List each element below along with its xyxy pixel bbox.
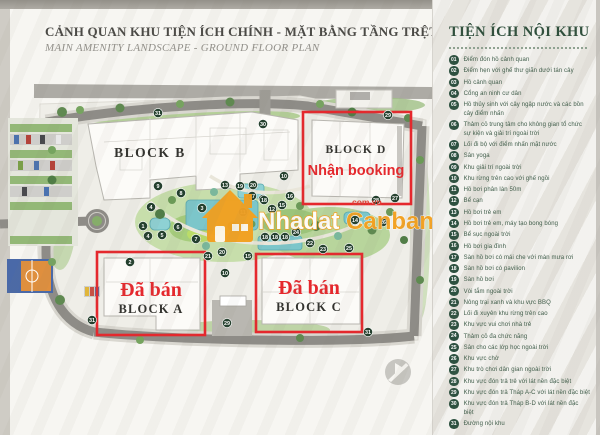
legend-item-label: Hồ bơi trẻ em, máy tạo bong bóng [464, 219, 590, 229]
legend-item: 25Sân cho các lớp học ngoài trời [449, 343, 590, 353]
amenity-marker-number: 29 [224, 321, 230, 327]
amenity-marker-number: 8 [180, 191, 183, 197]
legend-item: 24Thảm cỏ đa chức năng [449, 331, 590, 341]
watermark-domain: com.vn [352, 197, 382, 207]
page-subtitle: MAIN AMENITY LANDSCAPE - GROUND FLOOR PL… [45, 42, 438, 54]
legend-item: 13Hồ bơi trẻ em [449, 208, 590, 218]
amenity-marker-number: 13 [222, 183, 228, 189]
legend-item-number: 11 [449, 185, 459, 195]
legend-item: 06Thảm cỏ trung tâm cho không gian tổ ch… [449, 120, 590, 139]
amenity-marker-number: 21 [205, 254, 211, 260]
legend-item-number: 14 [449, 219, 459, 229]
legend-item: 28Khu vực đón trả trẻ với lát nền đặc bi… [449, 377, 590, 387]
legend-item-number: 05 [449, 100, 459, 110]
amenity-marker-number: 18 [261, 198, 267, 204]
legend-item-label: Khu vực đón trả Tháp B-D với lát nền đặc… [464, 399, 590, 418]
legend-item-label: Sân cho các lớp học ngoài trời [464, 343, 590, 353]
legend-item-label: Khu vực chờ [464, 354, 590, 364]
block-a-label: BLOCK A [118, 302, 183, 316]
amenity-marker-number: 30 [260, 122, 266, 128]
legend-item-label: Hồ bơi phân làn 50m [464, 185, 590, 195]
amenity-marker-number: 5 [161, 233, 164, 239]
legend-item-number: 30 [449, 399, 459, 409]
legend-title: TIỆN ÍCH NỘI KHU [449, 24, 587, 49]
amenity-marker-number: 4 [150, 205, 153, 211]
amenity-marker-number: 19 [237, 184, 243, 190]
legend-item-label: Hồ thủy sinh với cây ngập nước và các bồ… [464, 100, 590, 119]
legend-item-label: Khu trò chơi dân gian ngoài trời [464, 365, 590, 375]
legend-item-label: Cổng an ninh cư dân [464, 89, 590, 99]
legend-item-number: 08 [449, 151, 459, 161]
legend-item-number: 20 [449, 286, 459, 296]
amenity-marker-number: 29 [385, 113, 391, 119]
page-right-border [596, 0, 600, 435]
developer-logo-icon [385, 359, 411, 385]
block-b-label: BLOCK B [114, 145, 186, 160]
watermark-text: Nhadat Canban [258, 208, 434, 235]
amenity-marker-number: 15 [245, 254, 251, 260]
legend-item-label: Thảm cỏ đa chức năng [464, 331, 590, 341]
legend-item-label: Bể sục ngoài trời [464, 230, 590, 240]
legend-item-number: 27 [449, 365, 459, 375]
legend-item-number: 04 [449, 89, 459, 99]
legend-item-label: Sân yoga [464, 151, 590, 161]
amenity-marker-number: 6 [177, 225, 180, 231]
amenity-marker-number: 10 [281, 174, 287, 180]
block-c-label: BLOCK C [276, 300, 342, 314]
legend-item-number: 25 [449, 343, 459, 353]
legend-item-label: Sàn hồ bơi có pavilion [464, 264, 590, 274]
legend-item-number: 10 [449, 174, 459, 184]
legend-item-number: 07 [449, 140, 459, 150]
legend-item: 18Sàn hồ bơi có pavilion [449, 264, 590, 274]
legend-item: 12Bể cạn [449, 196, 590, 206]
dropoff-plaza [212, 296, 252, 336]
watermark-text-part2: Canban [346, 208, 434, 235]
block-a-sold-label: Đã bán [120, 279, 182, 301]
legend-item-label: Khu giải trí ngoài trời [464, 163, 590, 173]
legend-item-label: Khu rừng trên cao với ghế ngồi [464, 174, 590, 184]
legend-item: 09Khu giải trí ngoài trời [449, 163, 590, 173]
legend-item-label: Hồ bơi gia đình [464, 241, 590, 251]
legend-item-number: 12 [449, 196, 459, 206]
legend-item: 22Lối đi xuyên khu rừng trên cao [449, 309, 590, 319]
legend-item-number: 19 [449, 275, 459, 285]
legend-item: 10Khu rừng trên cao với ghế ngồi [449, 174, 590, 184]
roundabout [85, 209, 109, 233]
legend-item-number: 28 [449, 377, 459, 387]
legend-item: 05Hồ thủy sinh với cây ngập nước và các … [449, 100, 590, 119]
amenity-marker-number: 4 [147, 234, 150, 240]
legend-item-number: 29 [449, 388, 459, 398]
legend-item: 19Sàn hồ bơi [449, 275, 590, 285]
amenity-marker-number: 18 [282, 235, 288, 241]
amenity-marker-number: 3 [201, 206, 204, 212]
basketball-court [8, 260, 52, 292]
legend-item: 29Khu vực đón trả Tháp A-C với lát nền đ… [449, 388, 590, 398]
parking-area [8, 118, 78, 246]
amenity-marker-number: 18 [262, 235, 268, 241]
amenity-marker-number: 22 [307, 241, 313, 247]
legend-item-number: 18 [449, 264, 459, 274]
amenity-marker-number: 9 [157, 184, 160, 190]
amenity-marker-number: 10 [222, 271, 228, 277]
amenity-marker-number: 23 [320, 247, 326, 253]
legend-item-number: 17 [449, 253, 459, 263]
legend-item-number: 13 [449, 208, 459, 218]
legend-item-label: Đường nội khu [464, 419, 590, 429]
legend-item-label: Hồ cảnh quan [464, 78, 590, 88]
legend-list: 01Điểm đón hồ cảnh quan02Điểm hẹn với gh… [449, 55, 590, 429]
legend-item: 11Hồ bơi phân làn 50m [449, 185, 590, 195]
legend-item-label: Sàn hồ bơi có mái che với màn mưa rơi [464, 253, 590, 263]
legend-item-label: Thảm cỏ trung tâm cho không gian tổ chức… [464, 120, 590, 139]
amenity-marker-number: 2 [129, 260, 132, 266]
amenity-marker-number: 20 [219, 250, 225, 256]
block-d-booking-label: Nhận booking [308, 163, 405, 179]
legend-item: 20Vòi tắm ngoài trời [449, 286, 590, 296]
legend-item: 14Hồ bơi trẻ em, máy tạo bong bóng [449, 219, 590, 229]
legend-item: 16Hồ bơi gia đình [449, 241, 590, 251]
legend-item: 26Khu vực chờ [449, 354, 590, 364]
legend-item: 01Điểm đón hồ cảnh quan [449, 55, 590, 65]
amenity-marker-number: 16 [287, 194, 293, 200]
legend-item-label: Khu vực đón trả Tháp A-C với lát nền đặc… [464, 388, 590, 398]
legend-item-number: 02 [449, 66, 459, 76]
amenity-marker-number: 20 [250, 183, 256, 189]
legend-item: 08Sân yoga [449, 151, 590, 161]
legend-item: 04Cổng an ninh cư dân [449, 89, 590, 99]
legend-item-number: 31 [449, 419, 459, 429]
legend-item: 17Sàn hồ bơi có mái che với màn mưa rơi [449, 253, 590, 263]
legend-item-label: Điểm hẹn với ghế thư giãn dưới tán cây [464, 66, 590, 76]
amenity-marker-number: 31 [89, 318, 95, 324]
legend-item: 02Điểm hẹn với ghế thư giãn dưới tán cây [449, 66, 590, 76]
amenity-marker-number: 18 [272, 235, 278, 241]
block-c-sold-label: Đã bán [278, 277, 340, 299]
legend-item: 27Khu trò chơi dân gian ngoài trời [449, 365, 590, 375]
legend-item-number: 21 [449, 298, 459, 308]
building-block-d [312, 120, 404, 198]
legend-item-number: 03 [449, 78, 459, 88]
legend-item-label: Khu vực vui chơi nhà trẻ [464, 320, 590, 330]
block-d-label: BLOCK D [325, 144, 386, 156]
title-block: CẢNH QUAN KHU TIỆN ÍCH CHÍNH - MẶT BẰNG … [45, 24, 438, 54]
legend-item-number: 15 [449, 230, 459, 240]
page-title: CẢNH QUAN KHU TIỆN ÍCH CHÍNH - MẶT BẰNG … [45, 24, 438, 40]
legend-item-number: 23 [449, 320, 459, 330]
legend-item-label: Lối đi bộ với điểm nhấn mặt nước [464, 140, 590, 150]
legend-item: 21Nông trại xanh và khu vực BBQ [449, 298, 590, 308]
amenity-marker-number: 1 [142, 224, 145, 230]
amenity-marker-number: 27 [392, 196, 398, 202]
legend-item-number: 22 [449, 309, 459, 319]
legend-item-number: 24 [449, 331, 459, 341]
legend-item: 31Đường nội khu [449, 419, 590, 429]
legend-item-number: 09 [449, 163, 459, 173]
legend-item-label: Điểm đón hồ cảnh quan [464, 55, 590, 65]
building-northeast [336, 90, 392, 108]
legend-item-label: Lối đi xuyên khu rừng trên cao [464, 309, 590, 319]
legend-item: 23Khu vực vui chơi nhà trẻ [449, 320, 590, 330]
legend-item-number: 06 [449, 120, 459, 130]
legend-item-label: Bể cạn [464, 196, 590, 206]
legend-item: 07Lối đi bộ với điểm nhấn mặt nước [449, 140, 590, 150]
legend-item: 03Hồ cảnh quan [449, 78, 590, 88]
legend-item: 30Khu vực đón trả Tháp B-D với lát nền đ… [449, 399, 590, 418]
amenity-marker-number: 31 [365, 330, 371, 336]
legend-item-label: Hồ bơi trẻ em [464, 208, 590, 218]
legend-item-label: Vòi tắm ngoài trời [464, 286, 590, 296]
legend-panel: TIỆN ÍCH NỘI KHU 01Điểm đón hồ cảnh quan… [432, 0, 600, 435]
legend-item-number: 01 [449, 55, 459, 65]
amenity-marker-number: 7 [195, 237, 198, 243]
legend-item: 15Bể sục ngoài trời [449, 230, 590, 240]
legend-item-label: Sàn hồ bơi [464, 275, 590, 285]
amenity-marker-number: 25 [346, 246, 352, 252]
legend-item-number: 26 [449, 354, 459, 364]
legend-item-number: 16 [449, 241, 459, 251]
legend-item-label: Khu vực đón trả trẻ với lát nền đặc biệt [464, 377, 590, 387]
legend-item-label: Nông trại xanh và khu vực BBQ [464, 298, 590, 308]
amenity-marker-number: 31 [155, 111, 161, 117]
watermark-text-part1: Nhadat [258, 208, 339, 235]
